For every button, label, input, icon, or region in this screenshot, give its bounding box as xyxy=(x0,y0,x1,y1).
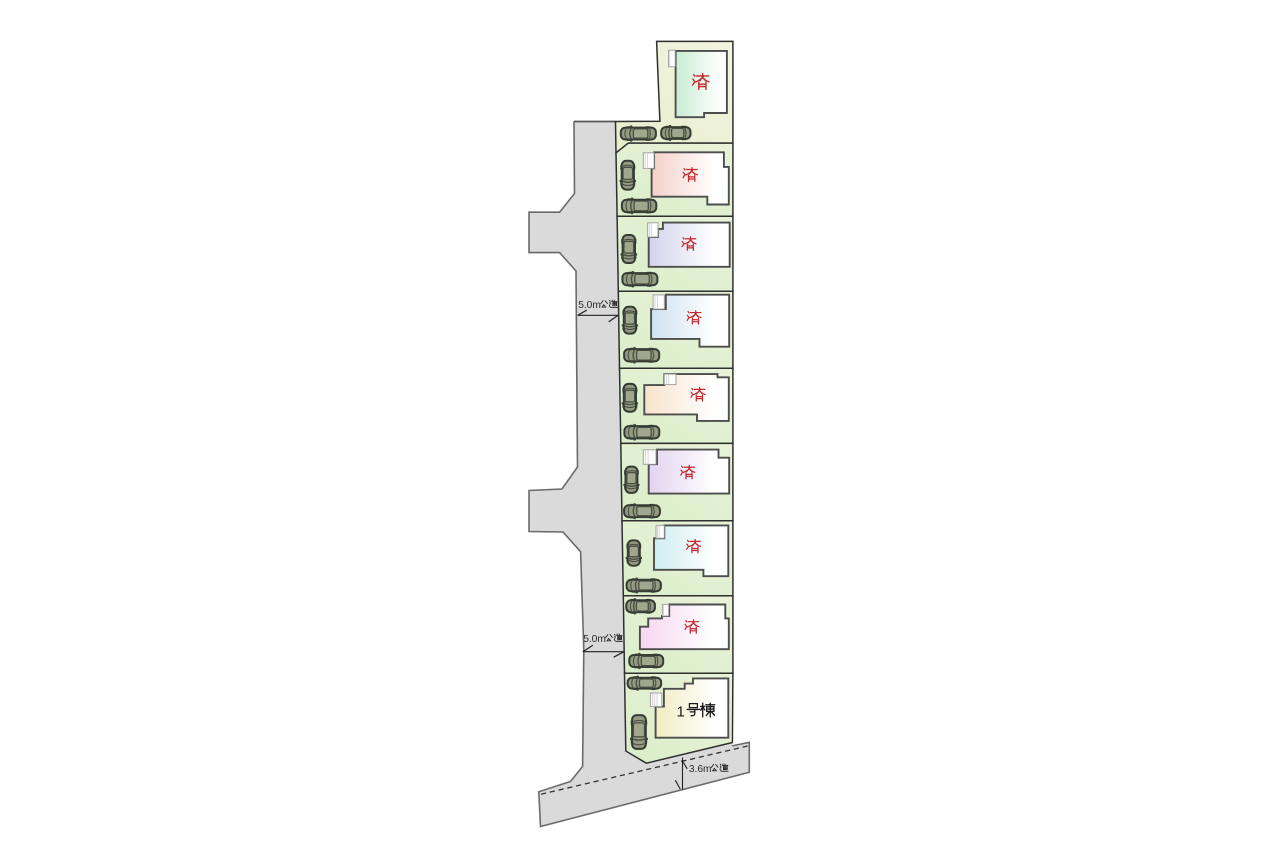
svg-text:1: 1 xyxy=(677,703,685,720)
svg-text:5.0m: 5.0m xyxy=(578,300,601,311)
svg-text:5.0m: 5.0m xyxy=(583,634,606,645)
svg-text:3.6m: 3.6m xyxy=(689,764,712,775)
